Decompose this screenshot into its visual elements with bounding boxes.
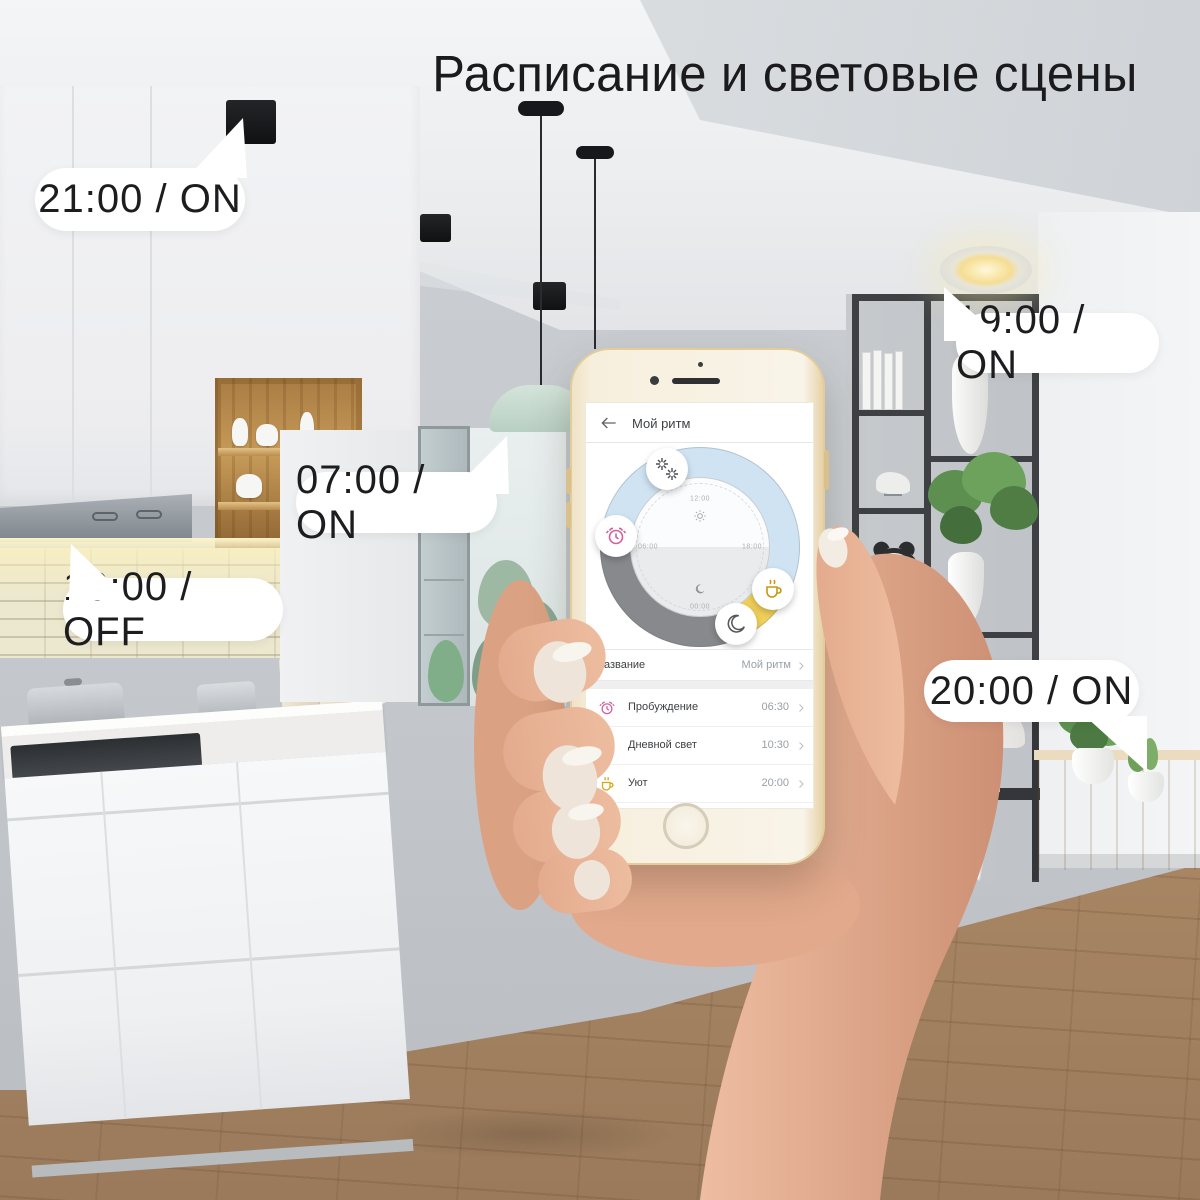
callout-tail <box>938 287 1010 343</box>
callout-text: 20:00 / ON <box>924 660 1139 722</box>
callout-tail <box>1081 716 1153 774</box>
promo-image: Расписание и световые сцены 21:00 / ON 0… <box>0 0 1200 1200</box>
callout-07-00: 07:00 / ON <box>296 472 497 533</box>
page-title: Расписание и световые сцены <box>415 38 1154 108</box>
callout-21-00: 21:00 / ON <box>35 168 245 231</box>
callout-tail <box>177 118 249 180</box>
callout-10-00: 10:00 / OFF <box>63 578 283 641</box>
callout-19-00: 19:00 / ON <box>956 313 1159 373</box>
callout-tail <box>441 436 513 496</box>
callout-20-00: 20:00 / ON <box>924 660 1139 722</box>
callout-tail <box>65 544 137 602</box>
